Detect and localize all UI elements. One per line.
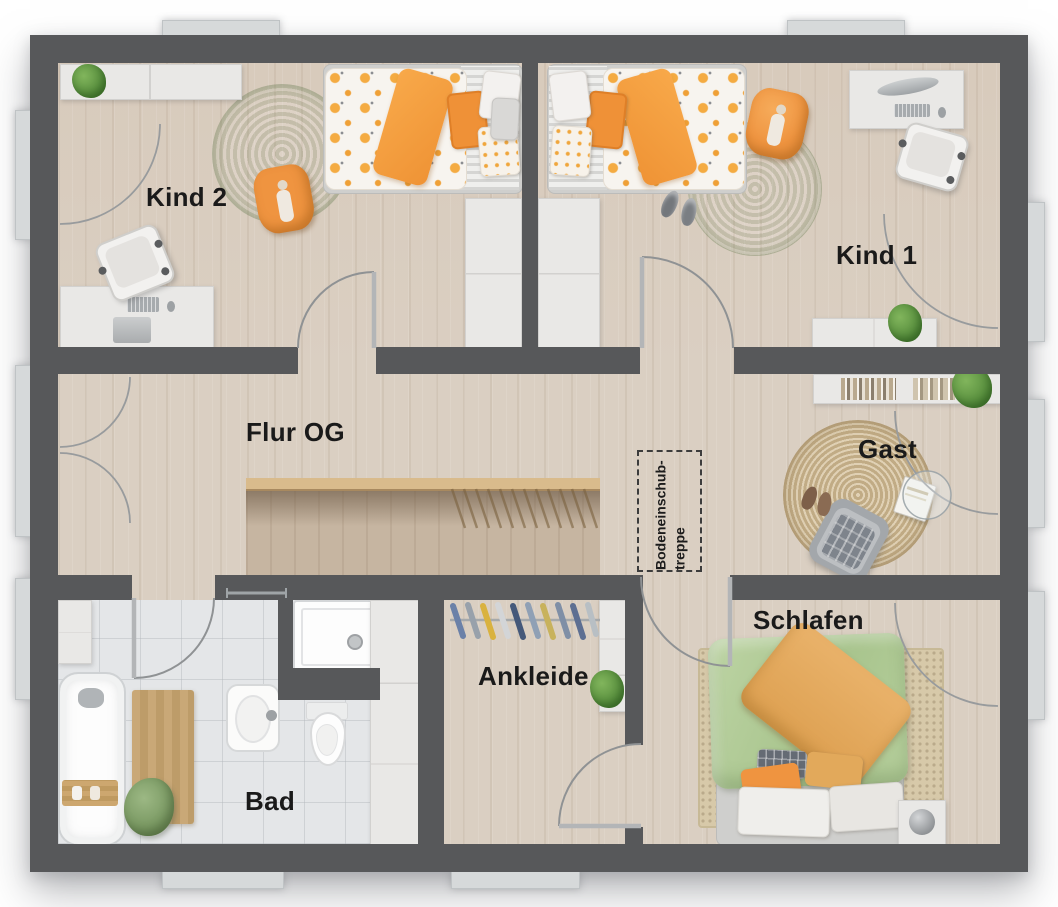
label-flur: Flur OG xyxy=(246,417,345,448)
label-bad: Bad xyxy=(245,786,295,817)
books xyxy=(841,378,896,400)
label-kind1: Kind 1 xyxy=(836,240,917,271)
bed-kind2 xyxy=(323,64,521,192)
sink xyxy=(226,684,280,752)
sink-faucet xyxy=(266,710,277,721)
wardrobe-kind2 xyxy=(465,198,522,348)
wall-bad-ankleide xyxy=(418,600,444,844)
bed-kind1 xyxy=(547,64,745,192)
towel-green xyxy=(124,778,174,836)
bathtub xyxy=(58,672,126,846)
pillow-white xyxy=(828,781,905,832)
wall-divider-kind xyxy=(522,63,538,348)
tall-cabinet-bad xyxy=(370,600,420,846)
wardrobe-kind1 xyxy=(538,198,600,348)
wall-h2a xyxy=(58,575,132,600)
stairwell-edge-beam xyxy=(246,478,600,491)
bath-cabinet xyxy=(58,600,92,664)
label-schlafen: Schlafen xyxy=(753,605,864,636)
wall-top xyxy=(30,35,1028,63)
wall-left xyxy=(30,35,58,872)
shower-drain xyxy=(347,634,363,650)
pillow-white xyxy=(737,786,831,837)
attic-stairs-box: Bodeneinschub- treppe xyxy=(637,450,702,572)
attic-stairs-label: Bodeneinschub- treppe xyxy=(641,452,698,570)
keyboard xyxy=(127,297,159,312)
wall-ankleide-v-stub xyxy=(625,827,643,844)
mouse xyxy=(938,107,946,118)
mouse xyxy=(167,301,175,312)
label-kind2: Kind 2 xyxy=(146,182,227,213)
label-ankleide: Ankleide xyxy=(478,661,589,692)
beanbag-kind2 xyxy=(251,162,318,237)
plant-kind2 xyxy=(72,64,106,98)
books xyxy=(913,378,955,400)
monitor xyxy=(876,74,940,100)
keyboard xyxy=(894,104,930,117)
wall-h2b xyxy=(215,575,643,600)
wall-right xyxy=(1000,35,1028,872)
nightstand-schlafen xyxy=(898,800,946,846)
wall-h1a xyxy=(58,347,298,374)
wall-ankleide-v xyxy=(625,600,643,745)
wall-shower-h xyxy=(278,668,380,700)
wall-h1b xyxy=(376,347,640,374)
lamp xyxy=(909,809,935,835)
monitor xyxy=(113,317,151,343)
bath-faucet xyxy=(78,688,104,708)
desk-kind1 xyxy=(849,70,964,129)
plant-kind1 xyxy=(888,304,922,342)
wall-h1c xyxy=(734,347,1000,374)
floor-plan: Kind 2 Kind 1 Flur OG Gast Schlafen Ankl… xyxy=(0,0,1058,907)
plant-ankleide xyxy=(590,670,624,708)
wall-bottom xyxy=(30,844,1028,872)
wall-h2c xyxy=(730,575,1000,600)
stairwell-opening xyxy=(246,486,600,575)
toilet xyxy=(304,702,348,766)
label-gast: Gast xyxy=(858,434,917,465)
